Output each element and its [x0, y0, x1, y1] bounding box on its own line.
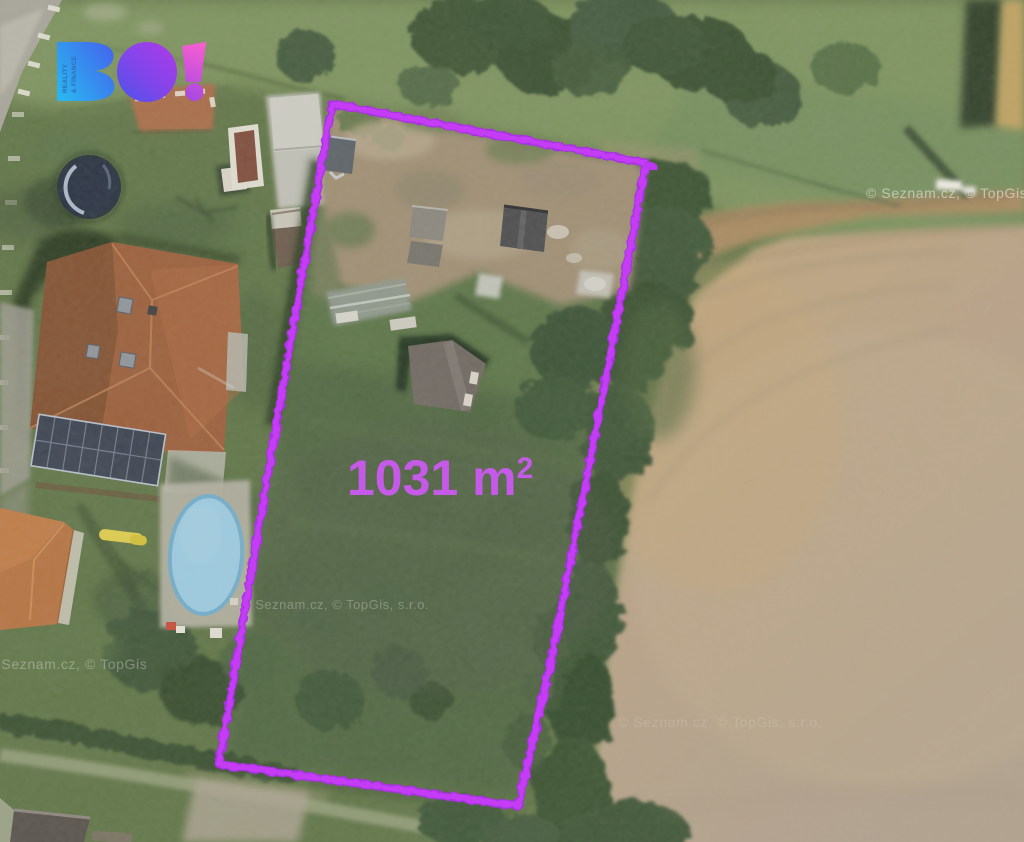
- svg-text:1031 m2: 1031 m2: [347, 450, 533, 506]
- svg-text:© Seznam.cz, © TopGis, s.r.o.: © Seznam.cz, © TopGis, s.r.o.: [241, 597, 429, 612]
- svg-text:© Seznam.cz, © TopGis: © Seznam.cz, © TopGis: [866, 185, 1024, 201]
- svg-text:& FINANCE: & FINANCE: [71, 56, 78, 93]
- svg-text:© Seznam.cz, © TopGis: © Seznam.cz, © TopGis: [0, 656, 147, 672]
- svg-text:REALITY: REALITY: [62, 63, 69, 93]
- svg-text:© Seznam.cz, © TopGis, s.r.o.: © Seznam.cz, © TopGis, s.r.o.: [618, 714, 822, 730]
